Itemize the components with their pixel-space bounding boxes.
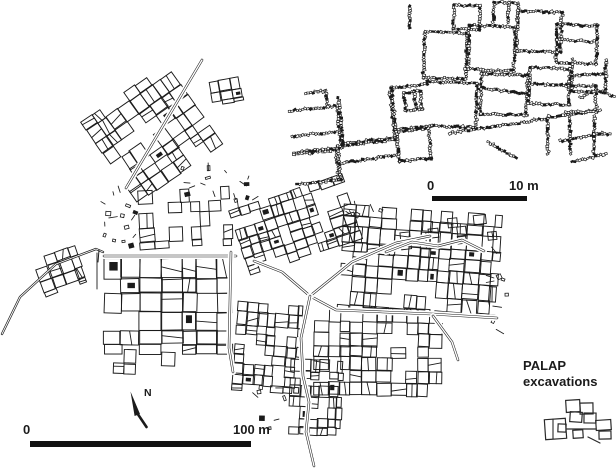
excavation-inset-plan [286,0,616,187]
inset-scale-end: 10 m [509,178,539,193]
main-scale-end: 100 m [233,422,270,437]
plan-artwork [0,0,616,468]
settlement-plan [2,60,508,466]
palap-caption-line1: PALAP [523,358,597,374]
north-label: N [144,387,152,399]
palap-mini-plan [544,400,611,443]
site-plan-figure: 0 10 m 0 100 m N PALAP excavations [0,0,616,468]
palap-caption-line2: excavations [523,374,597,390]
main-scale-start: 0 [23,422,30,437]
inset-scale-bar [432,196,527,201]
main-scale-bar [30,441,251,447]
inset-scale-start: 0 [427,178,434,193]
palap-caption: PALAP excavations [523,358,597,389]
